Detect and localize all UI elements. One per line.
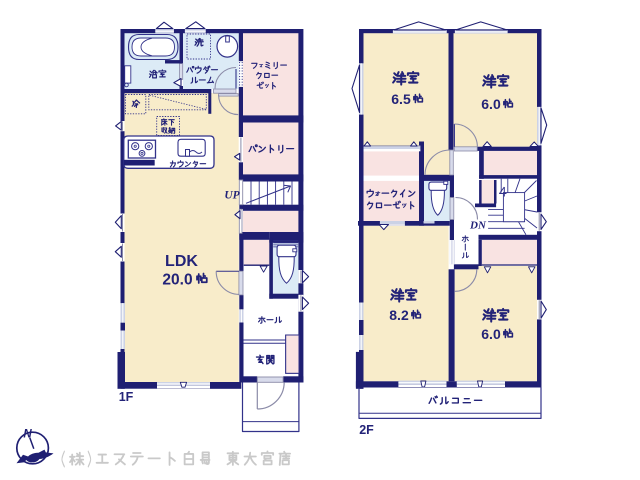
svg-text:LDK: LDK: [165, 253, 198, 270]
svg-text:8.2: 8.2: [389, 307, 409, 323]
svg-text:20.0: 20.0: [162, 272, 192, 289]
svg-text:2F: 2F: [359, 423, 374, 437]
svg-text:N: N: [23, 429, 32, 441]
svg-text:1F: 1F: [119, 390, 134, 404]
svg-text:6.5: 6.5: [391, 91, 411, 107]
svg-text:6.0: 6.0: [481, 96, 501, 112]
svg-text:UP: UP: [224, 190, 240, 202]
svg-text:DN: DN: [469, 220, 487, 232]
svg-text:6.0: 6.0: [481, 326, 501, 342]
